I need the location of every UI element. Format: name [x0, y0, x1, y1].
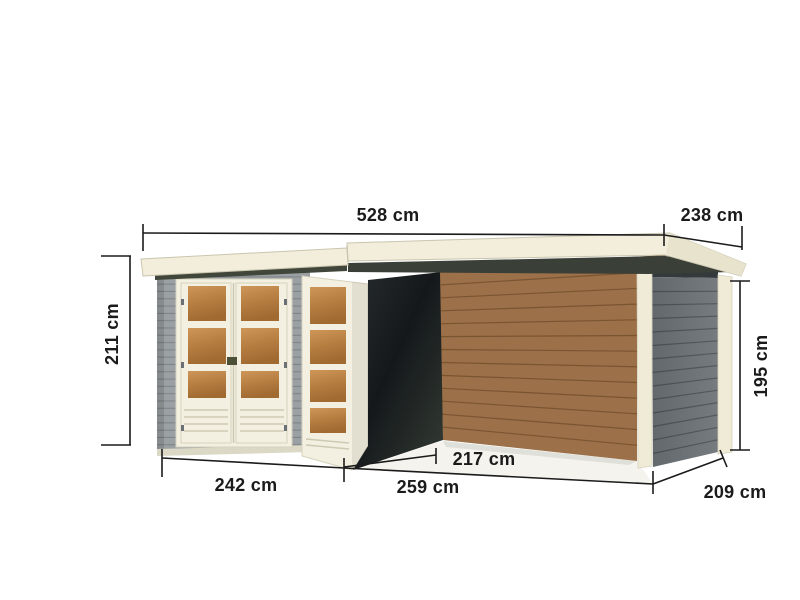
window-pane	[241, 328, 279, 364]
label-front-right-width: 259 cm	[397, 477, 460, 497]
label-front-left-width: 242 cm	[215, 475, 278, 495]
diagram-svg: 528 cm 238 cm 211 cm 195 cm 242 cm 259 c…	[0, 0, 800, 600]
label-right-depth: 209 cm	[704, 482, 767, 502]
double-door	[176, 279, 292, 447]
annex-back-wall	[440, 257, 637, 461]
window-pane	[188, 286, 226, 321]
element-jamb-shade	[352, 282, 368, 468]
label-overall-depth: 238 cm	[681, 205, 744, 225]
window-pane	[188, 328, 226, 364]
label-right-height: 195 cm	[751, 335, 771, 398]
corner-post-left	[637, 271, 652, 468]
label-overall-width: 528 cm	[357, 205, 420, 225]
window-pane	[241, 371, 279, 398]
window-pane	[310, 370, 346, 402]
corner-post-right	[718, 275, 732, 454]
corner-trim-left	[157, 277, 164, 453]
label-inner-depth: 217 cm	[453, 449, 516, 469]
side-window-element	[302, 276, 368, 470]
window-pane	[310, 408, 346, 433]
window-pane	[241, 286, 279, 321]
label-left-height: 211 cm	[102, 303, 122, 365]
window-pane	[188, 371, 226, 398]
window-pane	[310, 287, 346, 324]
door-handle	[227, 357, 237, 365]
shed-dimension-diagram: 528 cm 238 cm 211 cm 195 cm 242 cm 259 c…	[0, 0, 800, 600]
window-pane	[310, 330, 346, 364]
